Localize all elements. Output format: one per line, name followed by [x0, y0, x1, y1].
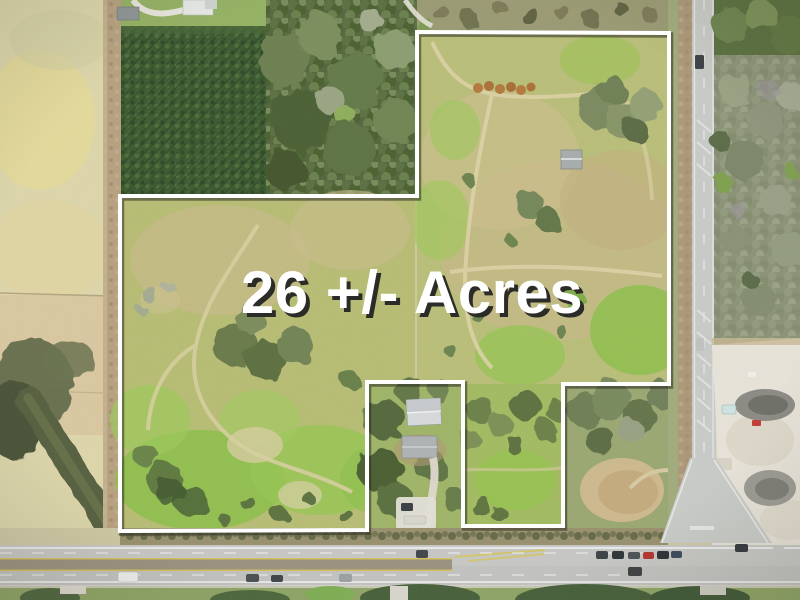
aerial-photo: 26 +/- Acres 26 +/- Acres [0, 0, 800, 600]
acreage-text: 26 +/- Acres 26 +/- Acres [241, 259, 587, 330]
acreage-label: 26 +/- Acres [241, 259, 583, 326]
